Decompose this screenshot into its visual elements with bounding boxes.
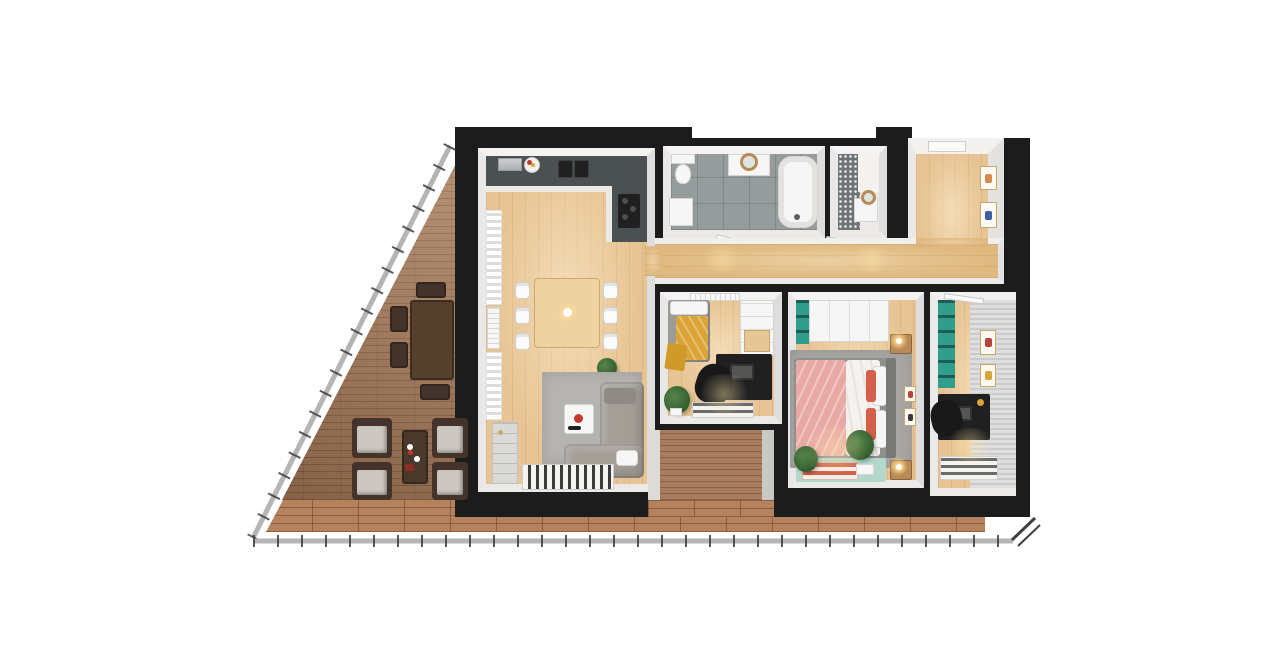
study-striped-rug [940, 456, 998, 480]
office-plant-pot [670, 408, 682, 416]
study-bookshelf [938, 300, 955, 388]
bedroom-frame [904, 408, 916, 426]
kitchen-sink [574, 160, 589, 178]
loggia-side-face [762, 430, 774, 500]
railing-corner-hatch [1012, 518, 1035, 540]
dining-chair [603, 282, 618, 299]
study-mug [977, 399, 984, 406]
dining-chair [515, 307, 530, 324]
bathtub-faucet [794, 214, 800, 220]
sofa-pillow-gray [604, 388, 636, 404]
loggia-side-face [648, 430, 660, 500]
fruit-yellow [531, 163, 535, 167]
corridor-hallway-junction [916, 238, 988, 246]
outdoor-dining-table [410, 300, 454, 380]
bedside-lamp [896, 338, 902, 344]
outdoor-cup [414, 456, 420, 462]
coffee-machine [498, 158, 522, 171]
kitchen-counter-arm-front [606, 186, 612, 242]
sofa-bed-pillows [670, 301, 708, 315]
outdoor-red-item [408, 450, 413, 455]
bedroom-wardrobe [809, 300, 889, 342]
bed-headboard [886, 358, 896, 458]
hallway-frame [980, 202, 997, 228]
striped-rug-living [522, 464, 614, 490]
nightstand [890, 334, 912, 354]
lounge-cushion [437, 470, 463, 495]
sofa-pillow [616, 450, 638, 466]
cooktop-burner [630, 206, 636, 212]
dining-chair [603, 307, 618, 324]
washing-machine [669, 198, 693, 226]
tall-cabinet [492, 422, 518, 484]
office-striped-rug [692, 402, 754, 418]
wc-mirror [861, 190, 876, 205]
outdoor-chair [390, 342, 408, 368]
frame-art [908, 391, 913, 398]
study-frame [980, 364, 996, 387]
nightstand [890, 460, 912, 480]
living-corridor-passage [644, 246, 662, 276]
frame-art [985, 338, 992, 347]
floorplan-canvas [0, 0, 1280, 667]
outdoor-chair [416, 282, 446, 298]
bedroom-frame [904, 386, 916, 402]
hallway-frame [980, 166, 997, 190]
dining-chair [515, 282, 530, 299]
lounge-cushion [437, 426, 463, 453]
dining-chair [515, 333, 530, 350]
curtain-left-lower [486, 352, 502, 420]
radiator [487, 307, 500, 349]
room-loggia [648, 430, 774, 500]
kitchen-sink [558, 160, 573, 178]
remote [568, 426, 581, 430]
mustard-cushion [664, 343, 687, 372]
frame-art [985, 211, 992, 220]
office-laptop [730, 364, 754, 380]
railing-corner-hatch [1018, 525, 1040, 546]
bedside-lamp [896, 464, 902, 470]
curtain-left-upper [486, 210, 502, 305]
lounge-chair [352, 462, 392, 500]
entrance-door [928, 141, 966, 152]
study-frame [980, 330, 996, 355]
vanity-mirror [740, 153, 758, 171]
cooktop-burner [622, 198, 628, 204]
lounge-chair [432, 462, 468, 500]
bed-coral-pillow [866, 370, 876, 402]
pendant-lamp [563, 308, 572, 317]
red-bowl [574, 414, 583, 423]
toilet-bowl [675, 164, 691, 184]
office-wardrobe-shelf [744, 330, 770, 352]
toilet-tank [671, 154, 695, 164]
outdoor-chair [390, 306, 408, 332]
bed-pink-duvet [796, 360, 846, 456]
cooktop-burner [622, 214, 628, 220]
wc-partition [858, 154, 879, 192]
lounge-cushion [357, 426, 387, 453]
lounge-chair [432, 418, 468, 458]
lounge-chair [352, 418, 392, 458]
lounge-cushion [357, 470, 387, 495]
bedroom-tray [856, 464, 874, 475]
bedroom-teal-wardrobe [796, 300, 809, 344]
bedroom-plant [794, 446, 818, 472]
dining-chair [603, 333, 618, 350]
frame-art [985, 174, 992, 183]
bedroom-plant [846, 430, 874, 460]
frame-art [908, 414, 913, 421]
frame-art [985, 371, 992, 380]
outdoor-chair [420, 384, 450, 400]
cabinet-accent [498, 430, 503, 435]
outdoor-red-tray [405, 464, 414, 471]
loggia-opening-tiles [648, 498, 774, 517]
